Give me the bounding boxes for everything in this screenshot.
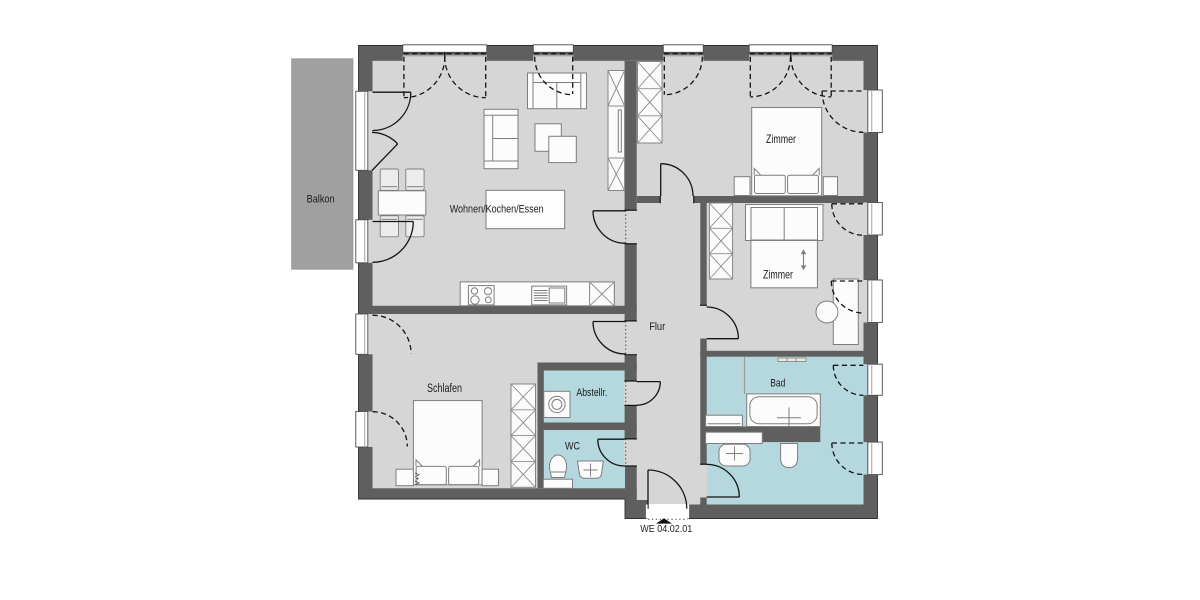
svg-text:Bad: Bad <box>770 378 785 390</box>
svg-text:Flur: Flur <box>649 321 665 333</box>
svg-text:Balkon: Balkon <box>307 193 335 205</box>
svg-text:Wohnen/Kochen/Essen: Wohnen/Kochen/Essen <box>450 204 544 216</box>
svg-text:WC: WC <box>565 441 580 453</box>
svg-text:Abstellr.: Abstellr. <box>576 387 607 399</box>
svg-text:Zimmer: Zimmer <box>766 132 796 146</box>
svg-text:Zimmer: Zimmer <box>763 268 793 282</box>
svg-text:WE 04.02.01: WE 04.02.01 <box>640 523 692 535</box>
svg-text:V+V: V+V <box>415 472 422 485</box>
svg-text:Schlafen: Schlafen <box>427 383 462 395</box>
